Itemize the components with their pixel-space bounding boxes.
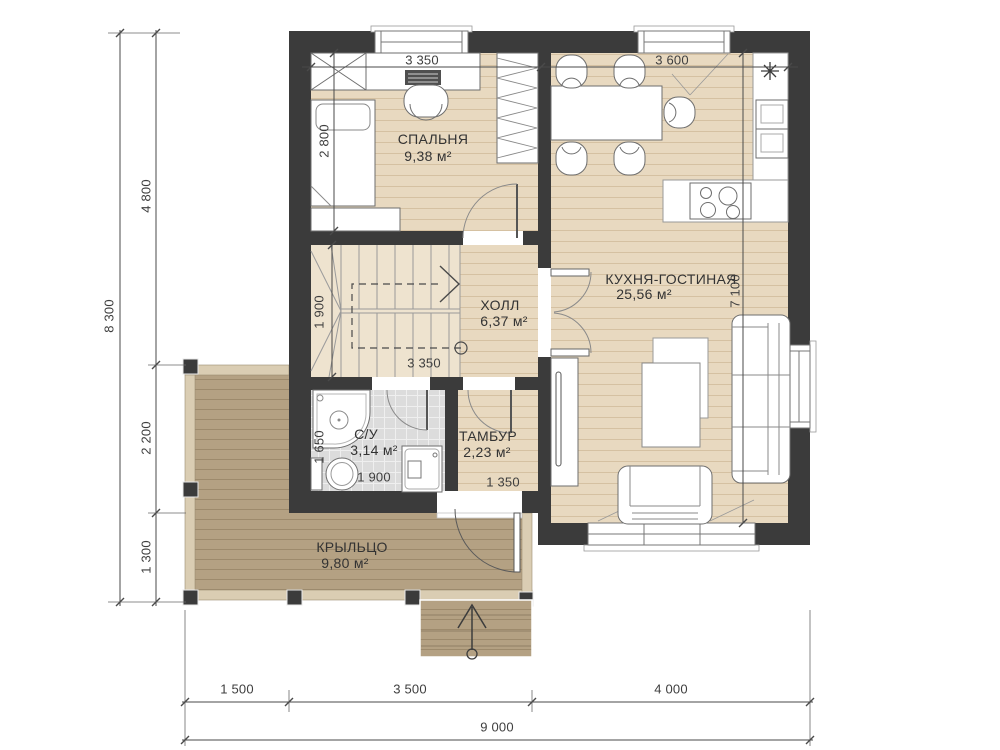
dim-top-kitchen: 3 600 — [655, 54, 689, 67]
bathroom-door-opening — [372, 377, 430, 390]
dim-stairs-depth: 1 900 — [313, 295, 326, 329]
dim-hall-width: 3 350 — [407, 357, 441, 370]
entrance-sill — [437, 513, 522, 518]
room-area-bedroom: 9,38 м² — [404, 149, 452, 163]
room-label-kitchen: КУХНЯ-ГОСТИНАЯ — [605, 272, 736, 286]
loveseat — [618, 466, 712, 524]
wardrobe-desk — [311, 53, 480, 90]
room-label-bedroom: СПАЛЬНЯ — [398, 132, 469, 146]
room-area-kitchen: 25,56 м² — [616, 287, 672, 301]
dim-bottom-mid: 3 500 — [393, 683, 427, 696]
room-area-hall: 6,37 м² — [480, 314, 528, 328]
room-label-porch: КРЫЛЬЦО — [316, 540, 387, 554]
dim-left-mid: 2 200 — [140, 421, 153, 455]
dim-left-top: 4 800 — [140, 179, 153, 213]
room-area-porch: 9,80 м² — [321, 556, 369, 570]
double-door-opening — [538, 268, 551, 357]
dim-left-bottom: 1 300 — [140, 540, 153, 574]
dim-bottom-total: 9 000 — [480, 721, 514, 734]
dim-left-total: 8 300 — [103, 299, 116, 333]
desk-chair — [404, 85, 448, 117]
dresser — [311, 208, 400, 231]
tv — [556, 372, 561, 466]
coffee-table — [642, 363, 700, 447]
dim-bottom-right: 4 000 — [654, 683, 688, 696]
room-area-bathroom: 3,14 м² — [350, 443, 398, 457]
floor-plan-drawing — [0, 0, 1000, 750]
dim-bathroom-width: 1 900 — [357, 471, 391, 484]
room-label-hall: ХОЛЛ — [480, 298, 519, 312]
bedroom-door-opening — [463, 231, 523, 245]
washer-door — [408, 461, 421, 478]
dim-top-bedroom: 3 350 — [405, 54, 439, 67]
sofa — [732, 315, 790, 483]
room-label-bathroom: С/У — [354, 427, 378, 441]
dim-bottom-left: 1 500 — [220, 683, 254, 696]
room-label-vestibule: ТАМБУР — [459, 429, 517, 443]
dim-kitchen-depth: 7 100 — [729, 274, 742, 308]
tv-stand — [551, 358, 578, 486]
entrance-opening — [437, 491, 522, 513]
vestibule-door-opening — [463, 377, 515, 390]
dim-bedroom-depth: 2 800 — [318, 124, 331, 158]
dim-bathroom-depth: 1 650 — [313, 430, 326, 464]
dim-vestibule-width: 1 350 — [486, 476, 520, 489]
floor-plan: СПАЛЬНЯ 9,38 м² КУХНЯ-ГОСТИНАЯ 25,56 м² … — [0, 0, 1000, 750]
room-area-vestibule: 2,23 м² — [463, 445, 511, 459]
entry-steps — [420, 600, 532, 659]
dining-table — [551, 86, 662, 140]
